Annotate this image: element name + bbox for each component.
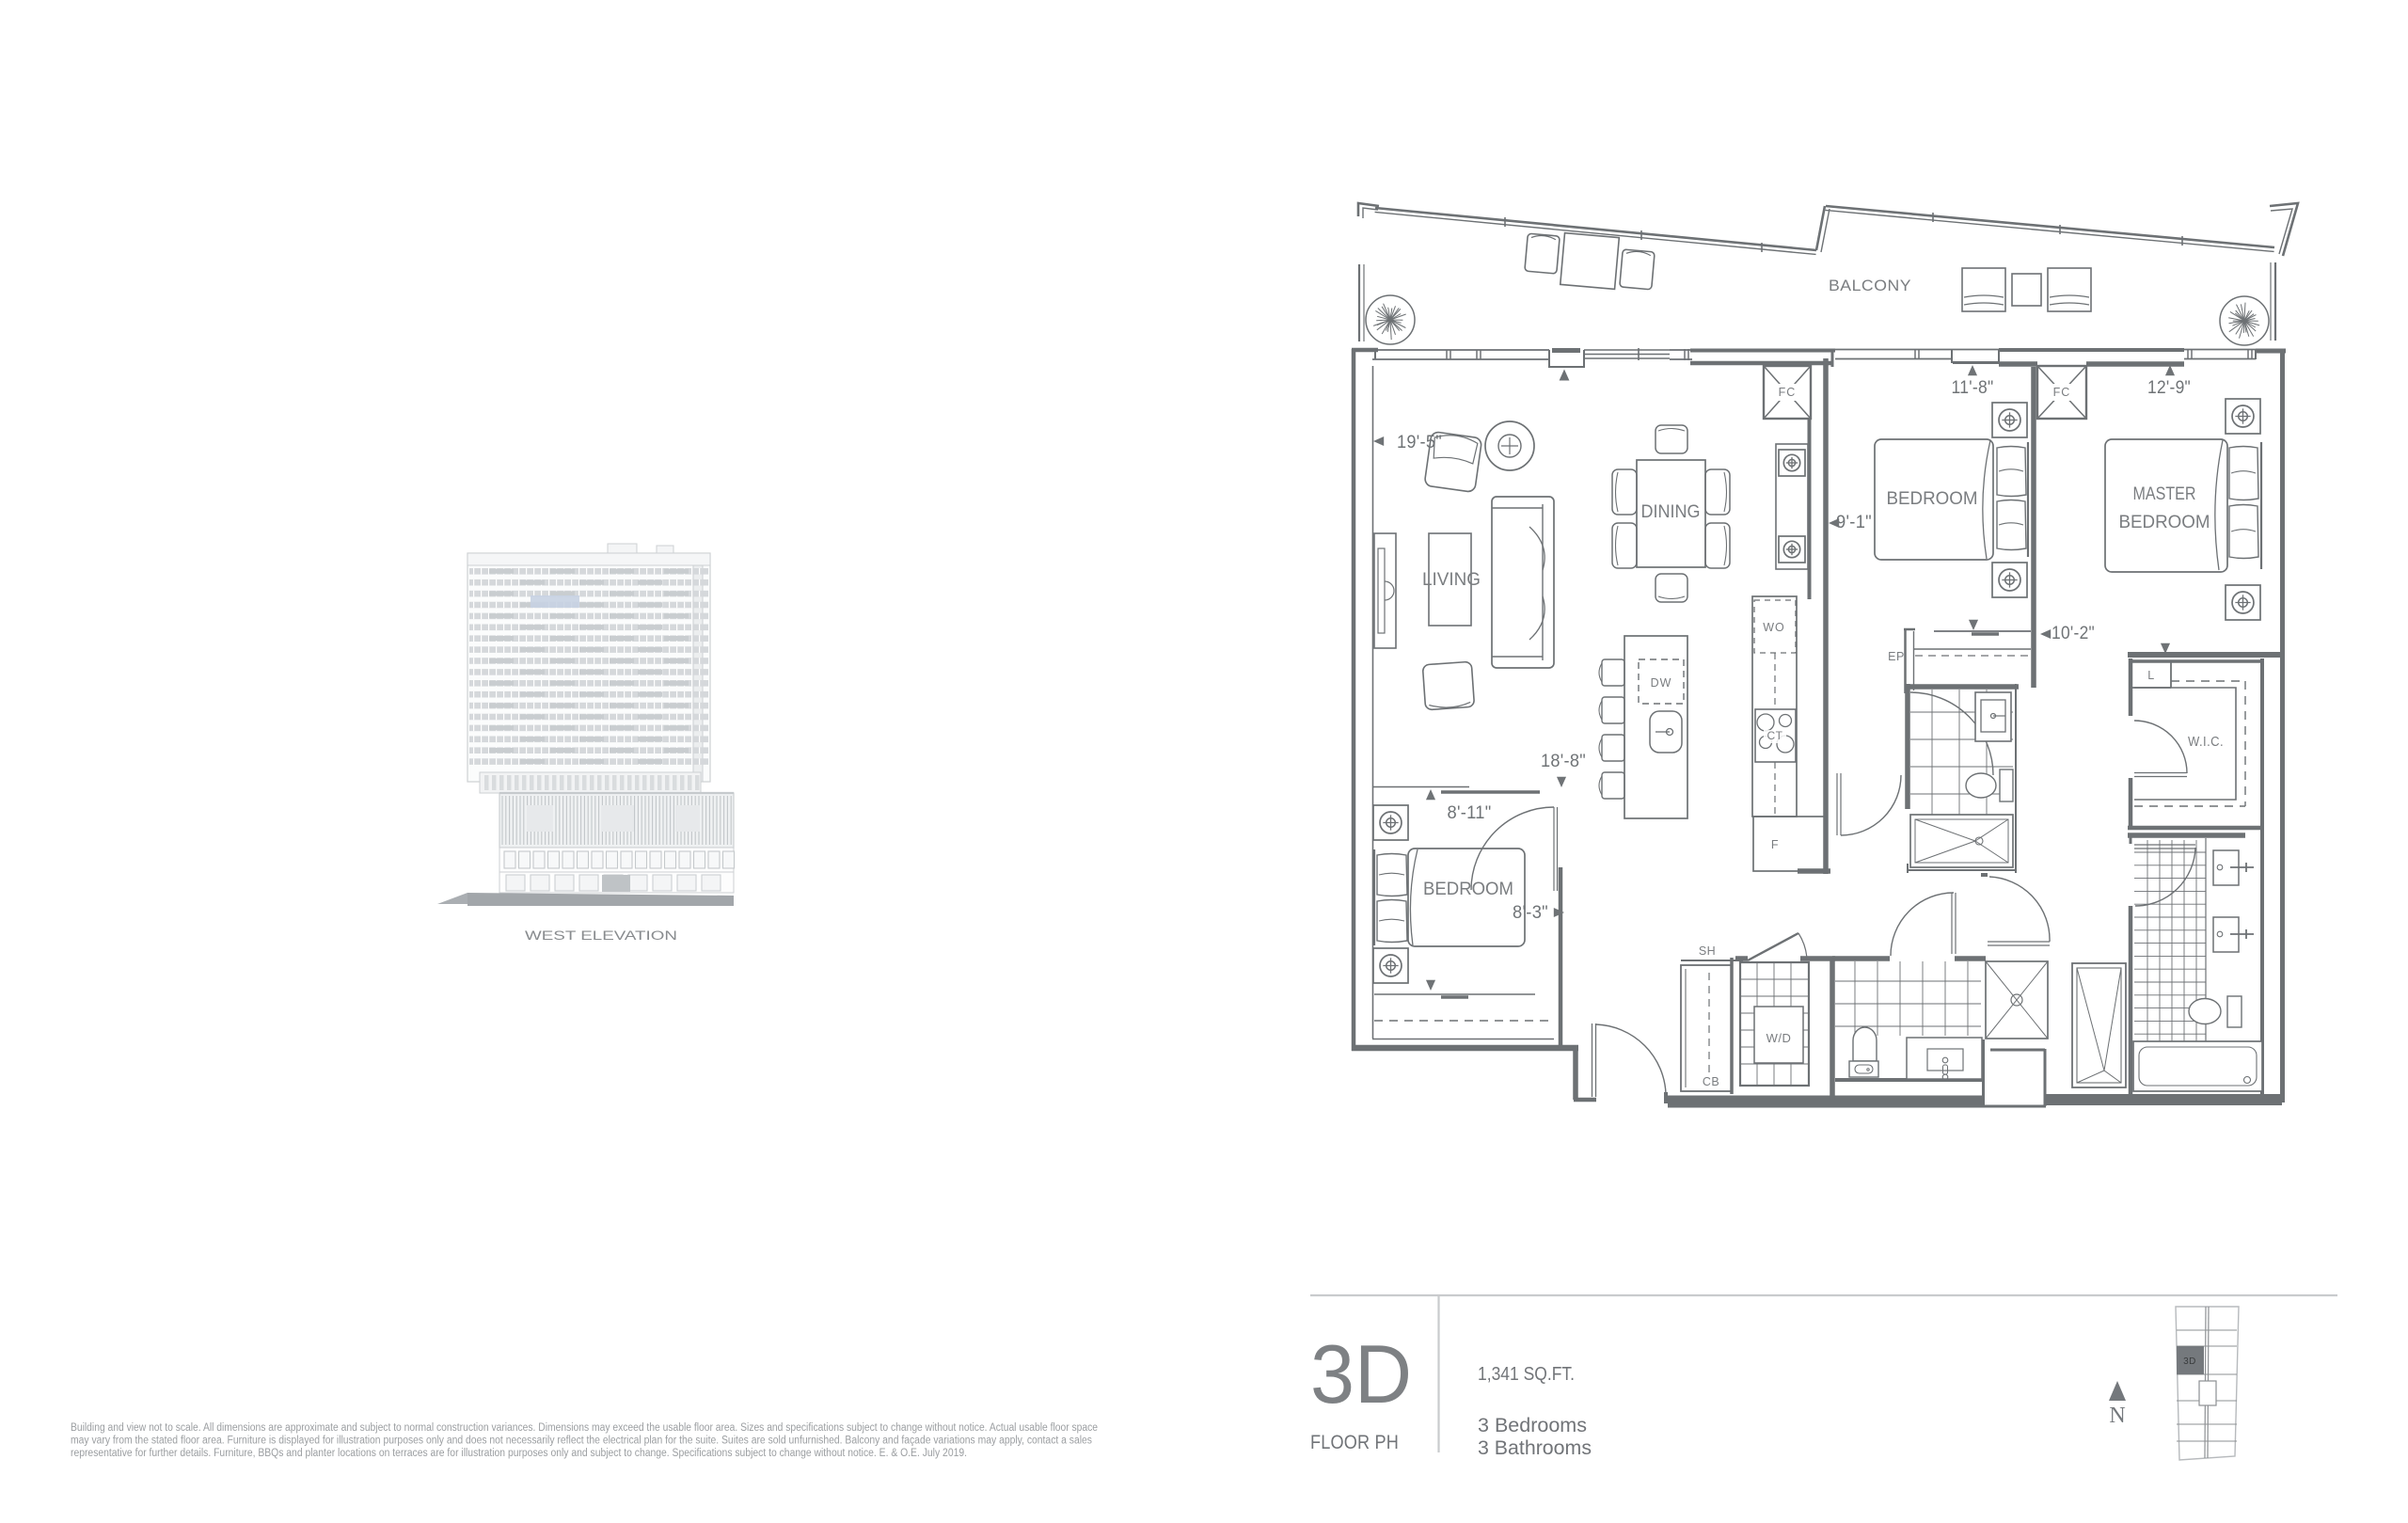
svg-text:CB: CB <box>1703 1075 1719 1088</box>
svg-text:FC: FC <box>1779 386 1797 399</box>
svg-text:WO: WO <box>1763 621 1785 634</box>
svg-text:FLOOR PH: FLOOR PH <box>1310 1432 1399 1453</box>
svg-text:3 Bedrooms: 3 Bedrooms <box>1478 1415 1587 1436</box>
svg-text:N: N <box>2109 1404 2125 1428</box>
svg-text:3D: 3D <box>1310 1327 1412 1420</box>
svg-text:DW: DW <box>1651 676 1672 690</box>
svg-text:representative for further det: representative for further details. Furn… <box>71 1448 967 1459</box>
svg-text:L: L <box>2147 669 2154 682</box>
svg-text:BEDROOM: BEDROOM <box>1423 880 1513 899</box>
svg-text:EP: EP <box>1888 650 1905 663</box>
svg-text:BALCONY: BALCONY <box>1829 277 1911 294</box>
svg-text:WEST ELEVATION: WEST ELEVATION <box>525 928 677 943</box>
svg-text:18'-8": 18'-8" <box>1541 752 1586 771</box>
svg-text:19'-5": 19'-5" <box>1397 433 1442 452</box>
svg-text:LIVING: LIVING <box>1422 570 1481 590</box>
svg-text:1,341 SQ.FT.: 1,341 SQ.FT. <box>1478 1364 1575 1385</box>
svg-text:MASTER: MASTER <box>2133 484 2196 504</box>
svg-text:CT: CT <box>1767 729 1783 742</box>
svg-text:8'-3": 8'-3" <box>1513 903 1548 923</box>
svg-text:3D: 3D <box>2183 1356 2196 1367</box>
svg-text:10'-2": 10'-2" <box>2052 624 2095 643</box>
svg-text:W/D: W/D <box>1766 1031 1792 1045</box>
svg-text:W.I.C.: W.I.C. <box>2188 734 2224 750</box>
svg-text:9'-1": 9'-1" <box>1836 513 1872 532</box>
svg-text:11'-8": 11'-8" <box>1952 378 1994 398</box>
svg-text:SH: SH <box>1699 944 1716 958</box>
svg-text:BEDROOM: BEDROOM <box>1887 489 1978 509</box>
svg-text:DINING: DINING <box>1641 502 1701 522</box>
svg-text:FC: FC <box>2053 386 2071 399</box>
svg-text:8'-11": 8'-11" <box>1448 803 1492 823</box>
svg-text:may vary from the stated floor: may vary from the stated floor area. Fur… <box>71 1436 1092 1447</box>
svg-text:3 Bathrooms: 3 Bathrooms <box>1478 1437 1592 1459</box>
svg-text:Building and view not to scale: Building and view not to scale. All dime… <box>71 1422 1098 1434</box>
svg-text:F: F <box>1771 838 1779 851</box>
svg-text:12'-9": 12'-9" <box>2147 378 2191 398</box>
svg-text:BEDROOM: BEDROOM <box>2119 513 2210 532</box>
